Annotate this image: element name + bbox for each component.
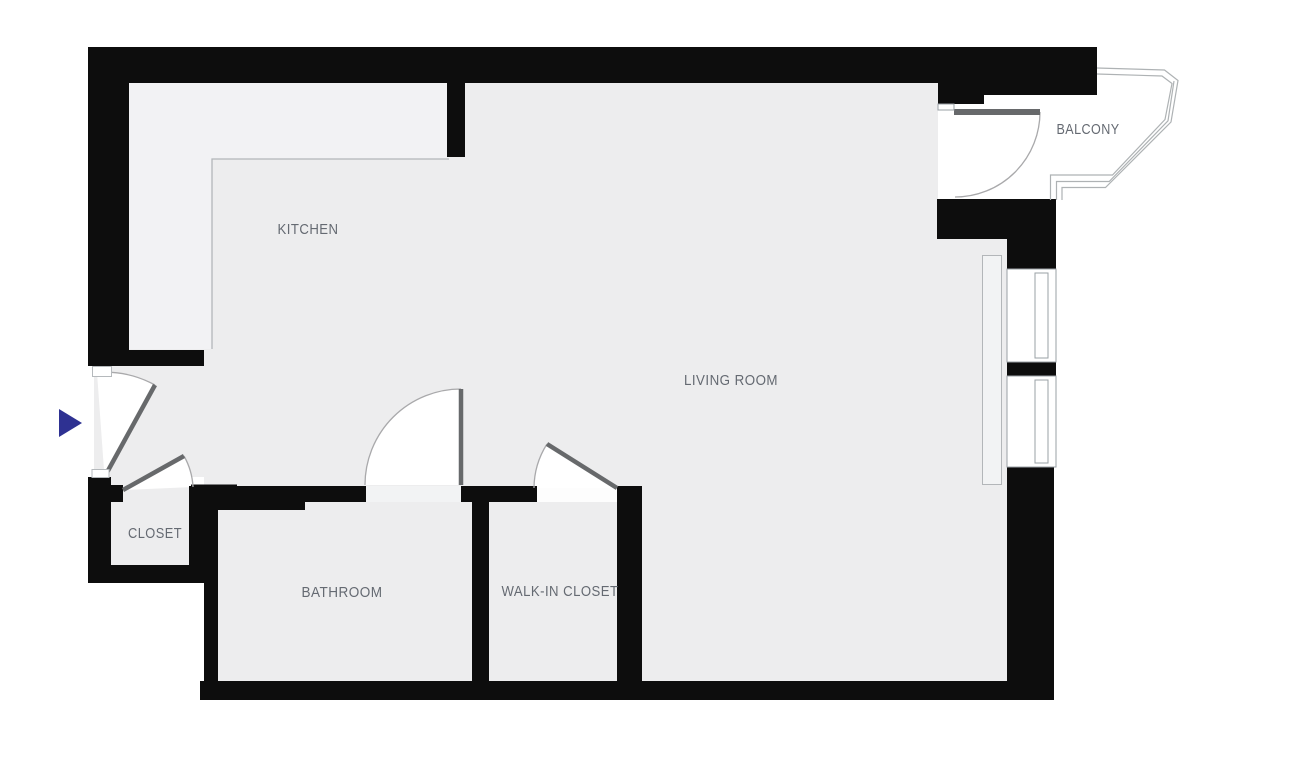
svg-text:LIVING ROOM: LIVING ROOM: [684, 373, 778, 389]
svg-text:BATHROOM: BATHROOM: [302, 585, 383, 601]
svg-text:CLOSET: CLOSET: [128, 526, 182, 542]
svg-text:BALCONY: BALCONY: [1057, 122, 1120, 138]
svg-text:WALK-IN CLOSET: WALK-IN CLOSET: [502, 584, 619, 600]
svg-text:KITCHEN: KITCHEN: [278, 222, 339, 238]
